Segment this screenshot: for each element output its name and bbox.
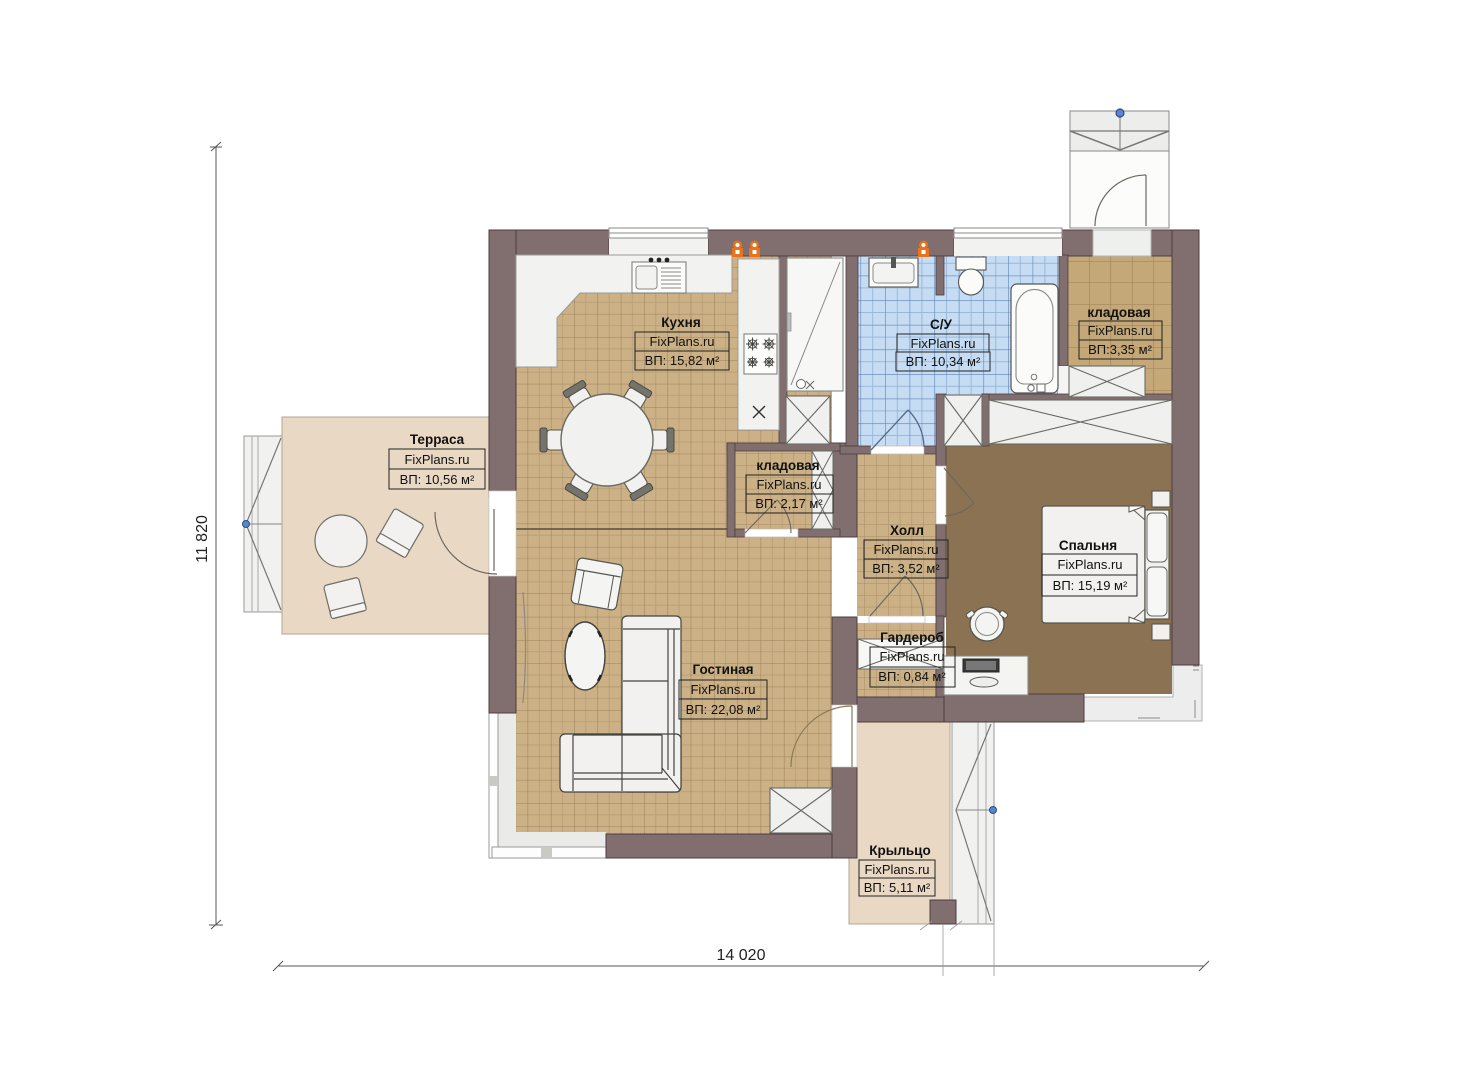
svg-text:ВП: 10,56 м²: ВП: 10,56 м² [400, 472, 475, 487]
svg-text:FixPlans.ru: FixPlans.ru [864, 862, 929, 877]
svg-text:ВП: 3,52 м²: ВП: 3,52 м² [872, 561, 940, 576]
svg-text:FixPlans.ru: FixPlans.ru [690, 682, 755, 697]
svg-text:Крыльцо: Крыльцо [869, 843, 930, 858]
svg-text:кладовая: кладовая [756, 458, 819, 473]
svg-text:Гостиная: Гостиная [692, 662, 753, 677]
svg-text:ВП: 2,17 м²: ВП: 2,17 м² [755, 496, 823, 511]
svg-text:Спальня: Спальня [1059, 538, 1117, 553]
svg-text:ВП: 10,34 м²: ВП: 10,34 м² [906, 354, 981, 369]
svg-text:FixPlans.ru: FixPlans.ru [649, 334, 714, 349]
svg-text:11 820: 11 820 [194, 515, 211, 563]
svg-text:ВП: 15,82 м²: ВП: 15,82 м² [645, 353, 720, 368]
svg-text:Кухня: Кухня [661, 315, 700, 330]
svg-text:FixPlans.ru: FixPlans.ru [879, 649, 944, 664]
svg-text:ВП: 22,08 м²: ВП: 22,08 м² [686, 702, 761, 717]
svg-text:Терраса: Терраса [410, 432, 465, 447]
svg-text:Гардероб: Гардероб [880, 630, 944, 645]
svg-text:FixPlans.ru: FixPlans.ru [910, 336, 975, 351]
svg-text:FixPlans.ru: FixPlans.ru [873, 542, 938, 557]
svg-text:FixPlans.ru: FixPlans.ru [1057, 557, 1122, 572]
svg-text:С/У: С/У [930, 317, 953, 332]
svg-text:ВП:3,35 м²: ВП:3,35 м² [1088, 342, 1152, 357]
svg-text:FixPlans.ru: FixPlans.ru [404, 452, 469, 467]
svg-text:Холл: Холл [890, 523, 924, 538]
svg-text:ВП: 0,84 м²: ВП: 0,84 м² [878, 669, 946, 684]
svg-text:14 020: 14 020 [717, 947, 766, 964]
svg-text:ВП: 15,19 м²: ВП: 15,19 м² [1053, 578, 1128, 593]
svg-text:FixPlans.ru: FixPlans.ru [1087, 323, 1152, 338]
svg-text:ВП: 5,11 м²: ВП: 5,11 м² [864, 880, 931, 895]
svg-text:FixPlans.ru: FixPlans.ru [756, 477, 821, 492]
svg-text:кладовая: кладовая [1087, 305, 1150, 320]
